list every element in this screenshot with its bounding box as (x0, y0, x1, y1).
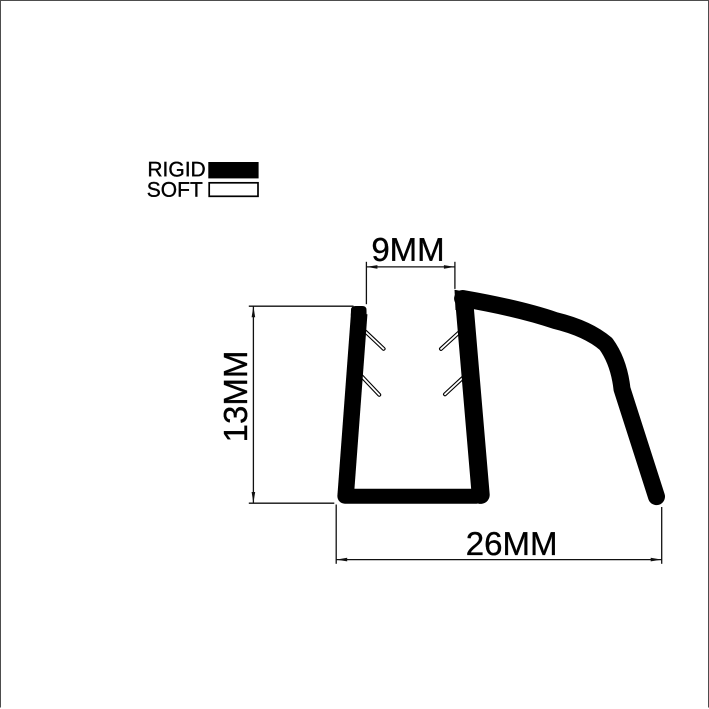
svg-text:13MM: 13MM (217, 351, 254, 443)
svg-text:9MM: 9MM (371, 231, 444, 268)
svg-text:SOFT: SOFT (147, 179, 203, 202)
svg-text:26MM: 26MM (466, 525, 558, 562)
